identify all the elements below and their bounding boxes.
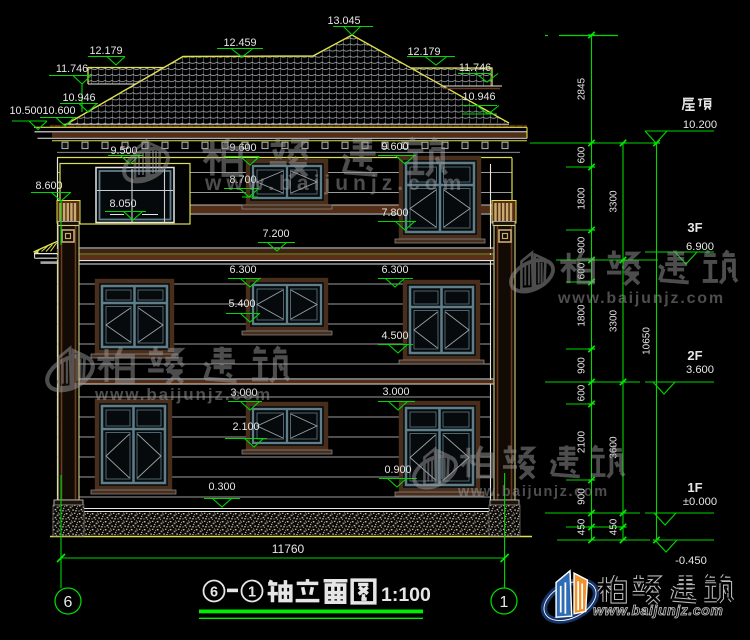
svg-text:900: 900 bbox=[577, 357, 588, 374]
svg-text:7.800: 7.800 bbox=[381, 207, 408, 219]
svg-text:www.baijunjz.com: www.baijunjz.com bbox=[557, 290, 725, 307]
svg-text:12.179: 12.179 bbox=[407, 46, 440, 58]
svg-text:2.100: 2.100 bbox=[232, 421, 259, 433]
svg-text:4.500: 4.500 bbox=[381, 330, 408, 342]
svg-text:10650: 10650 bbox=[642, 327, 653, 355]
svg-text:6: 6 bbox=[210, 585, 218, 601]
svg-text:2845: 2845 bbox=[577, 77, 588, 100]
svg-text:1F: 1F bbox=[687, 480, 702, 495]
svg-text:8.600: 8.600 bbox=[35, 180, 62, 192]
svg-text:6: 6 bbox=[64, 594, 73, 611]
svg-text:10.946: 10.946 bbox=[62, 92, 95, 104]
svg-text:3F: 3F bbox=[687, 220, 702, 235]
svg-text:2100: 2100 bbox=[577, 430, 588, 453]
svg-text:1: 1 bbox=[248, 585, 256, 601]
svg-text:www.baijunjz.com: www.baijunjz.com bbox=[593, 602, 723, 618]
svg-text:10.500: 10.500 bbox=[9, 105, 42, 117]
svg-text:11.746: 11.746 bbox=[56, 63, 88, 75]
svg-text:7.200: 7.200 bbox=[262, 228, 289, 240]
svg-text:3300: 3300 bbox=[609, 309, 620, 332]
svg-text:www.baijunjz.com: www.baijunjz.com bbox=[94, 385, 272, 404]
svg-text:450: 450 bbox=[577, 518, 588, 535]
svg-text:10.600: 10.600 bbox=[42, 105, 75, 117]
svg-text:6.300: 6.300 bbox=[381, 264, 408, 276]
svg-text:2F: 2F bbox=[687, 348, 702, 363]
svg-text:0.900: 0.900 bbox=[384, 464, 411, 476]
svg-text:10.946: 10.946 bbox=[462, 91, 495, 103]
svg-text:8.050: 8.050 bbox=[109, 198, 136, 210]
svg-text:3.000: 3.000 bbox=[382, 386, 409, 398]
svg-text:1800: 1800 bbox=[577, 304, 588, 327]
svg-text:900: 900 bbox=[577, 236, 588, 253]
svg-text:6.300: 6.300 bbox=[229, 264, 256, 276]
svg-text:±0.000: ±0.000 bbox=[683, 496, 717, 508]
svg-text:1: 1 bbox=[500, 594, 509, 611]
svg-text:9.600: 9.600 bbox=[381, 141, 408, 153]
svg-text:www.baijunjz.com: www.baijunjz.com bbox=[457, 484, 609, 500]
svg-text:600: 600 bbox=[577, 384, 588, 401]
svg-text:450: 450 bbox=[609, 518, 620, 535]
svg-text:www.baijunjz.com: www.baijunjz.com bbox=[204, 172, 466, 195]
svg-text:3300: 3300 bbox=[609, 190, 620, 213]
svg-text:12.459: 12.459 bbox=[223, 37, 256, 49]
svg-text:1800: 1800 bbox=[577, 187, 588, 210]
svg-text:600: 600 bbox=[577, 146, 588, 163]
svg-text:11760: 11760 bbox=[272, 542, 305, 556]
svg-text:0.300: 0.300 bbox=[208, 481, 235, 493]
svg-text:11.746: 11.746 bbox=[459, 62, 491, 74]
svg-text:-0.450: -0.450 bbox=[675, 555, 707, 567]
svg-text:12.179: 12.179 bbox=[89, 45, 122, 57]
svg-text:10.200: 10.200 bbox=[683, 119, 717, 131]
svg-text:3.600: 3.600 bbox=[686, 364, 714, 376]
svg-text:13.045: 13.045 bbox=[327, 15, 360, 27]
svg-text:5.400: 5.400 bbox=[228, 298, 255, 310]
svg-text:1:100: 1:100 bbox=[381, 584, 431, 606]
